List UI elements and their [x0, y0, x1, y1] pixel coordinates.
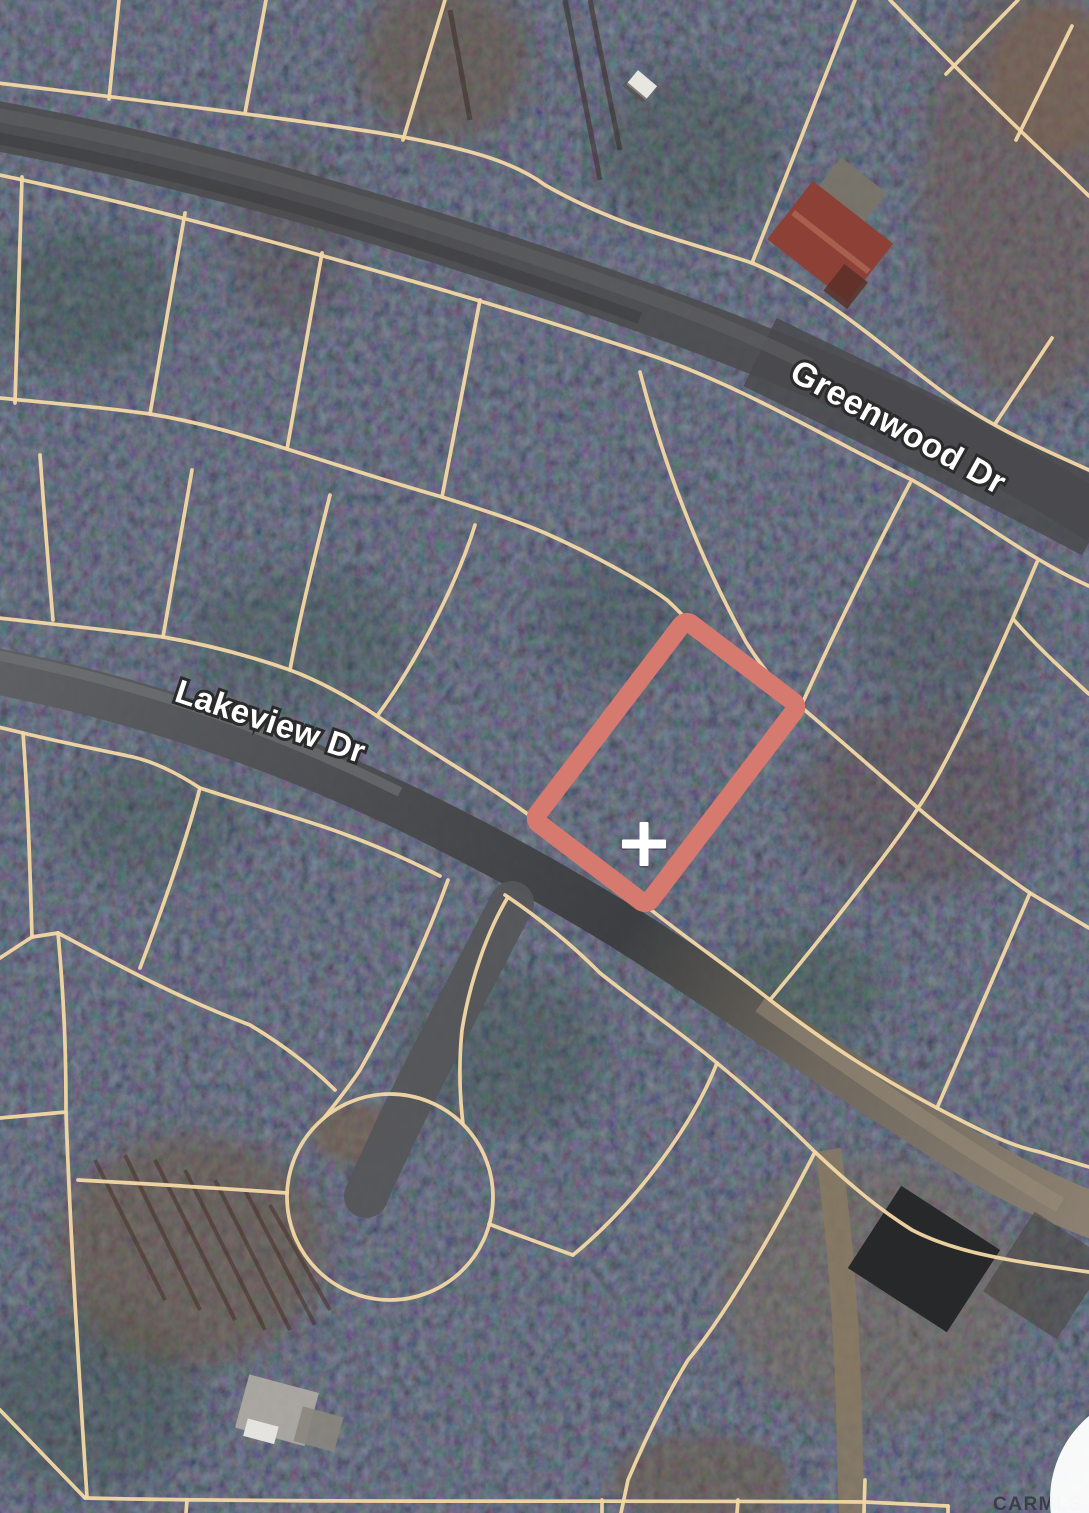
satellite-map: Greenwood Dr Lakeview Dr CARMLS INC — [0, 0, 1089, 1513]
parcel-line — [864, 1480, 865, 1513]
parcel-line — [186, 1500, 187, 1513]
parcel-line — [737, 1500, 738, 1513]
map-viewport[interactable]: Greenwood Dr Lakeview Dr CARMLS INC — [0, 0, 1089, 1513]
